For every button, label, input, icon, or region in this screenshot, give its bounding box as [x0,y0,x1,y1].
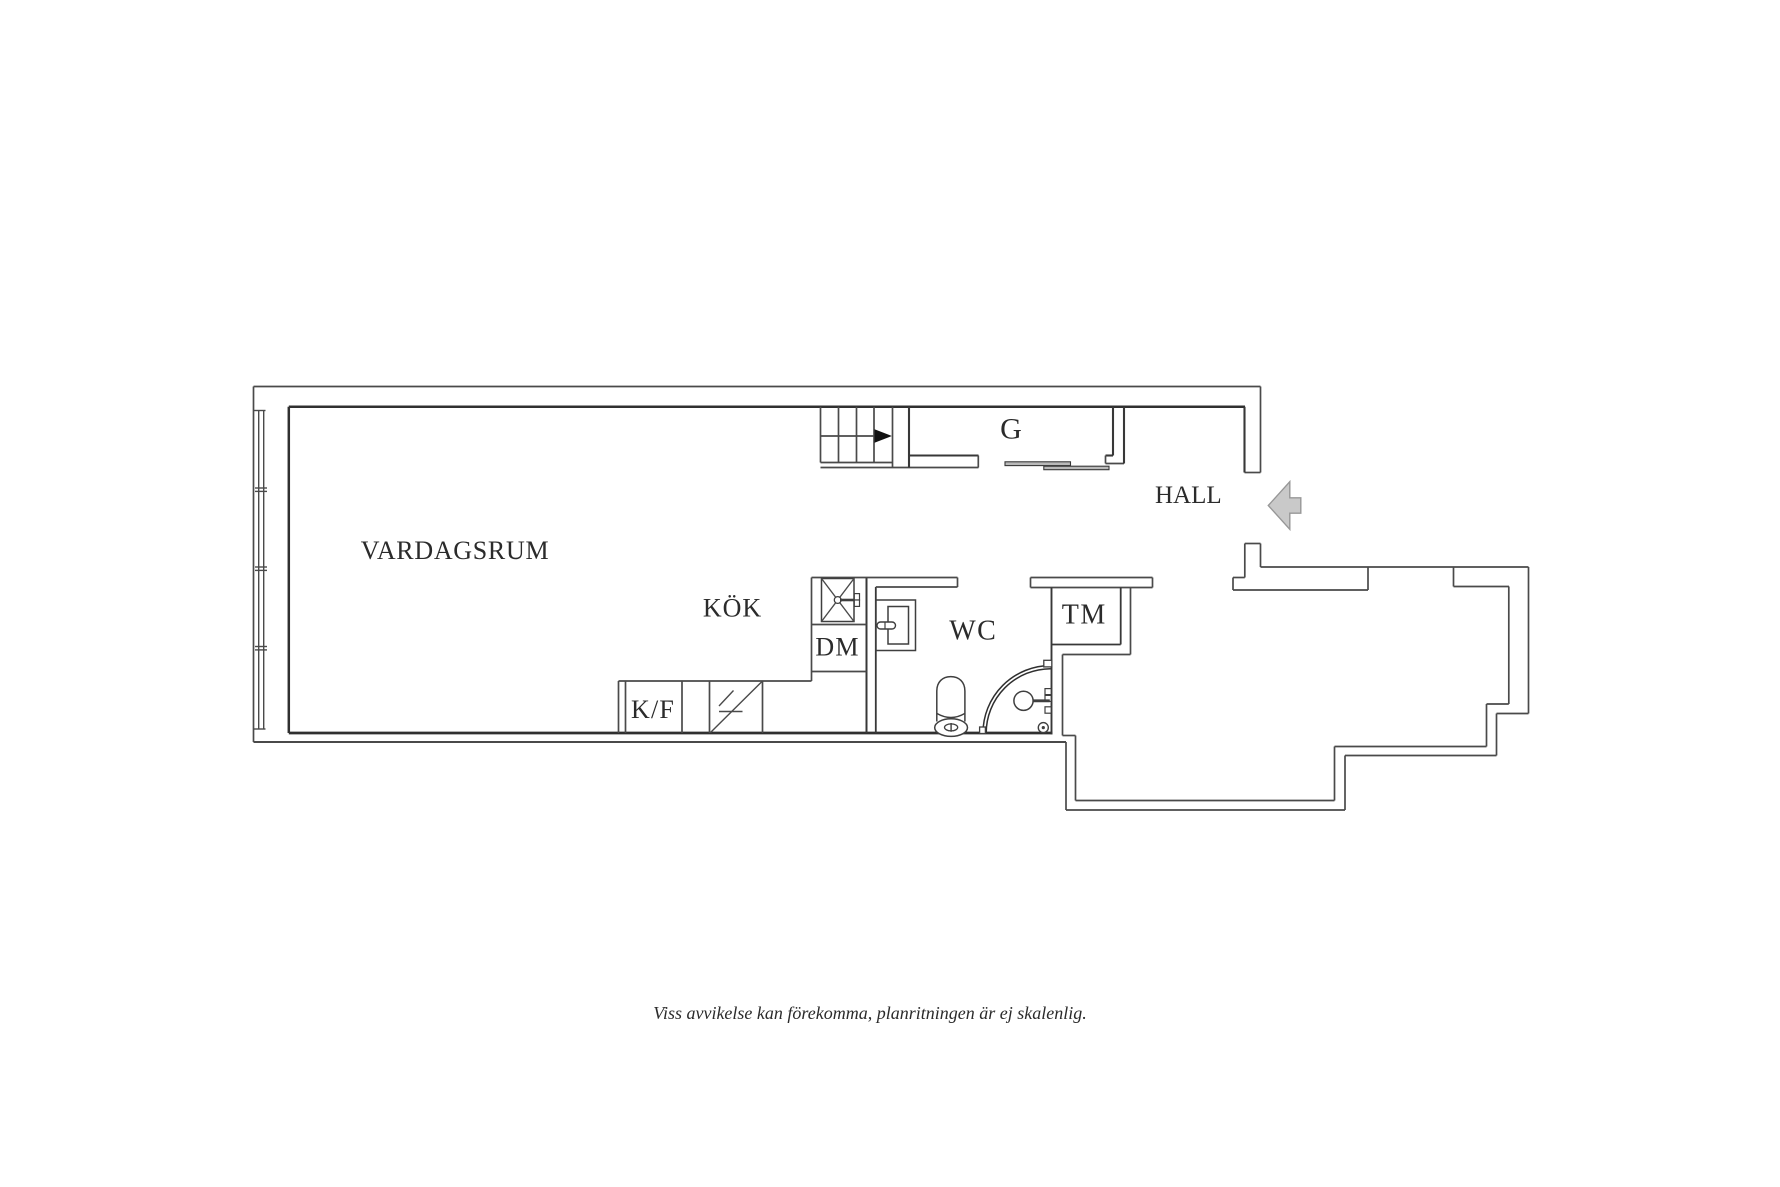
svg-text:Viss avvikelse kan förekomma,: Viss avvikelse kan förekomma, planritnin… [653,1003,1086,1023]
svg-text:WC: WC [949,616,997,647]
svg-text:DM: DM [815,633,859,662]
svg-text:K/F: K/F [631,695,675,724]
svg-text:G: G [1000,413,1022,446]
svg-text:VARDAGSRUM: VARDAGSRUM [361,536,550,565]
svg-text:KÖK: KÖK [703,594,762,623]
svg-text:HALL: HALL [1155,482,1222,509]
svg-text:TM: TM [1062,600,1107,631]
